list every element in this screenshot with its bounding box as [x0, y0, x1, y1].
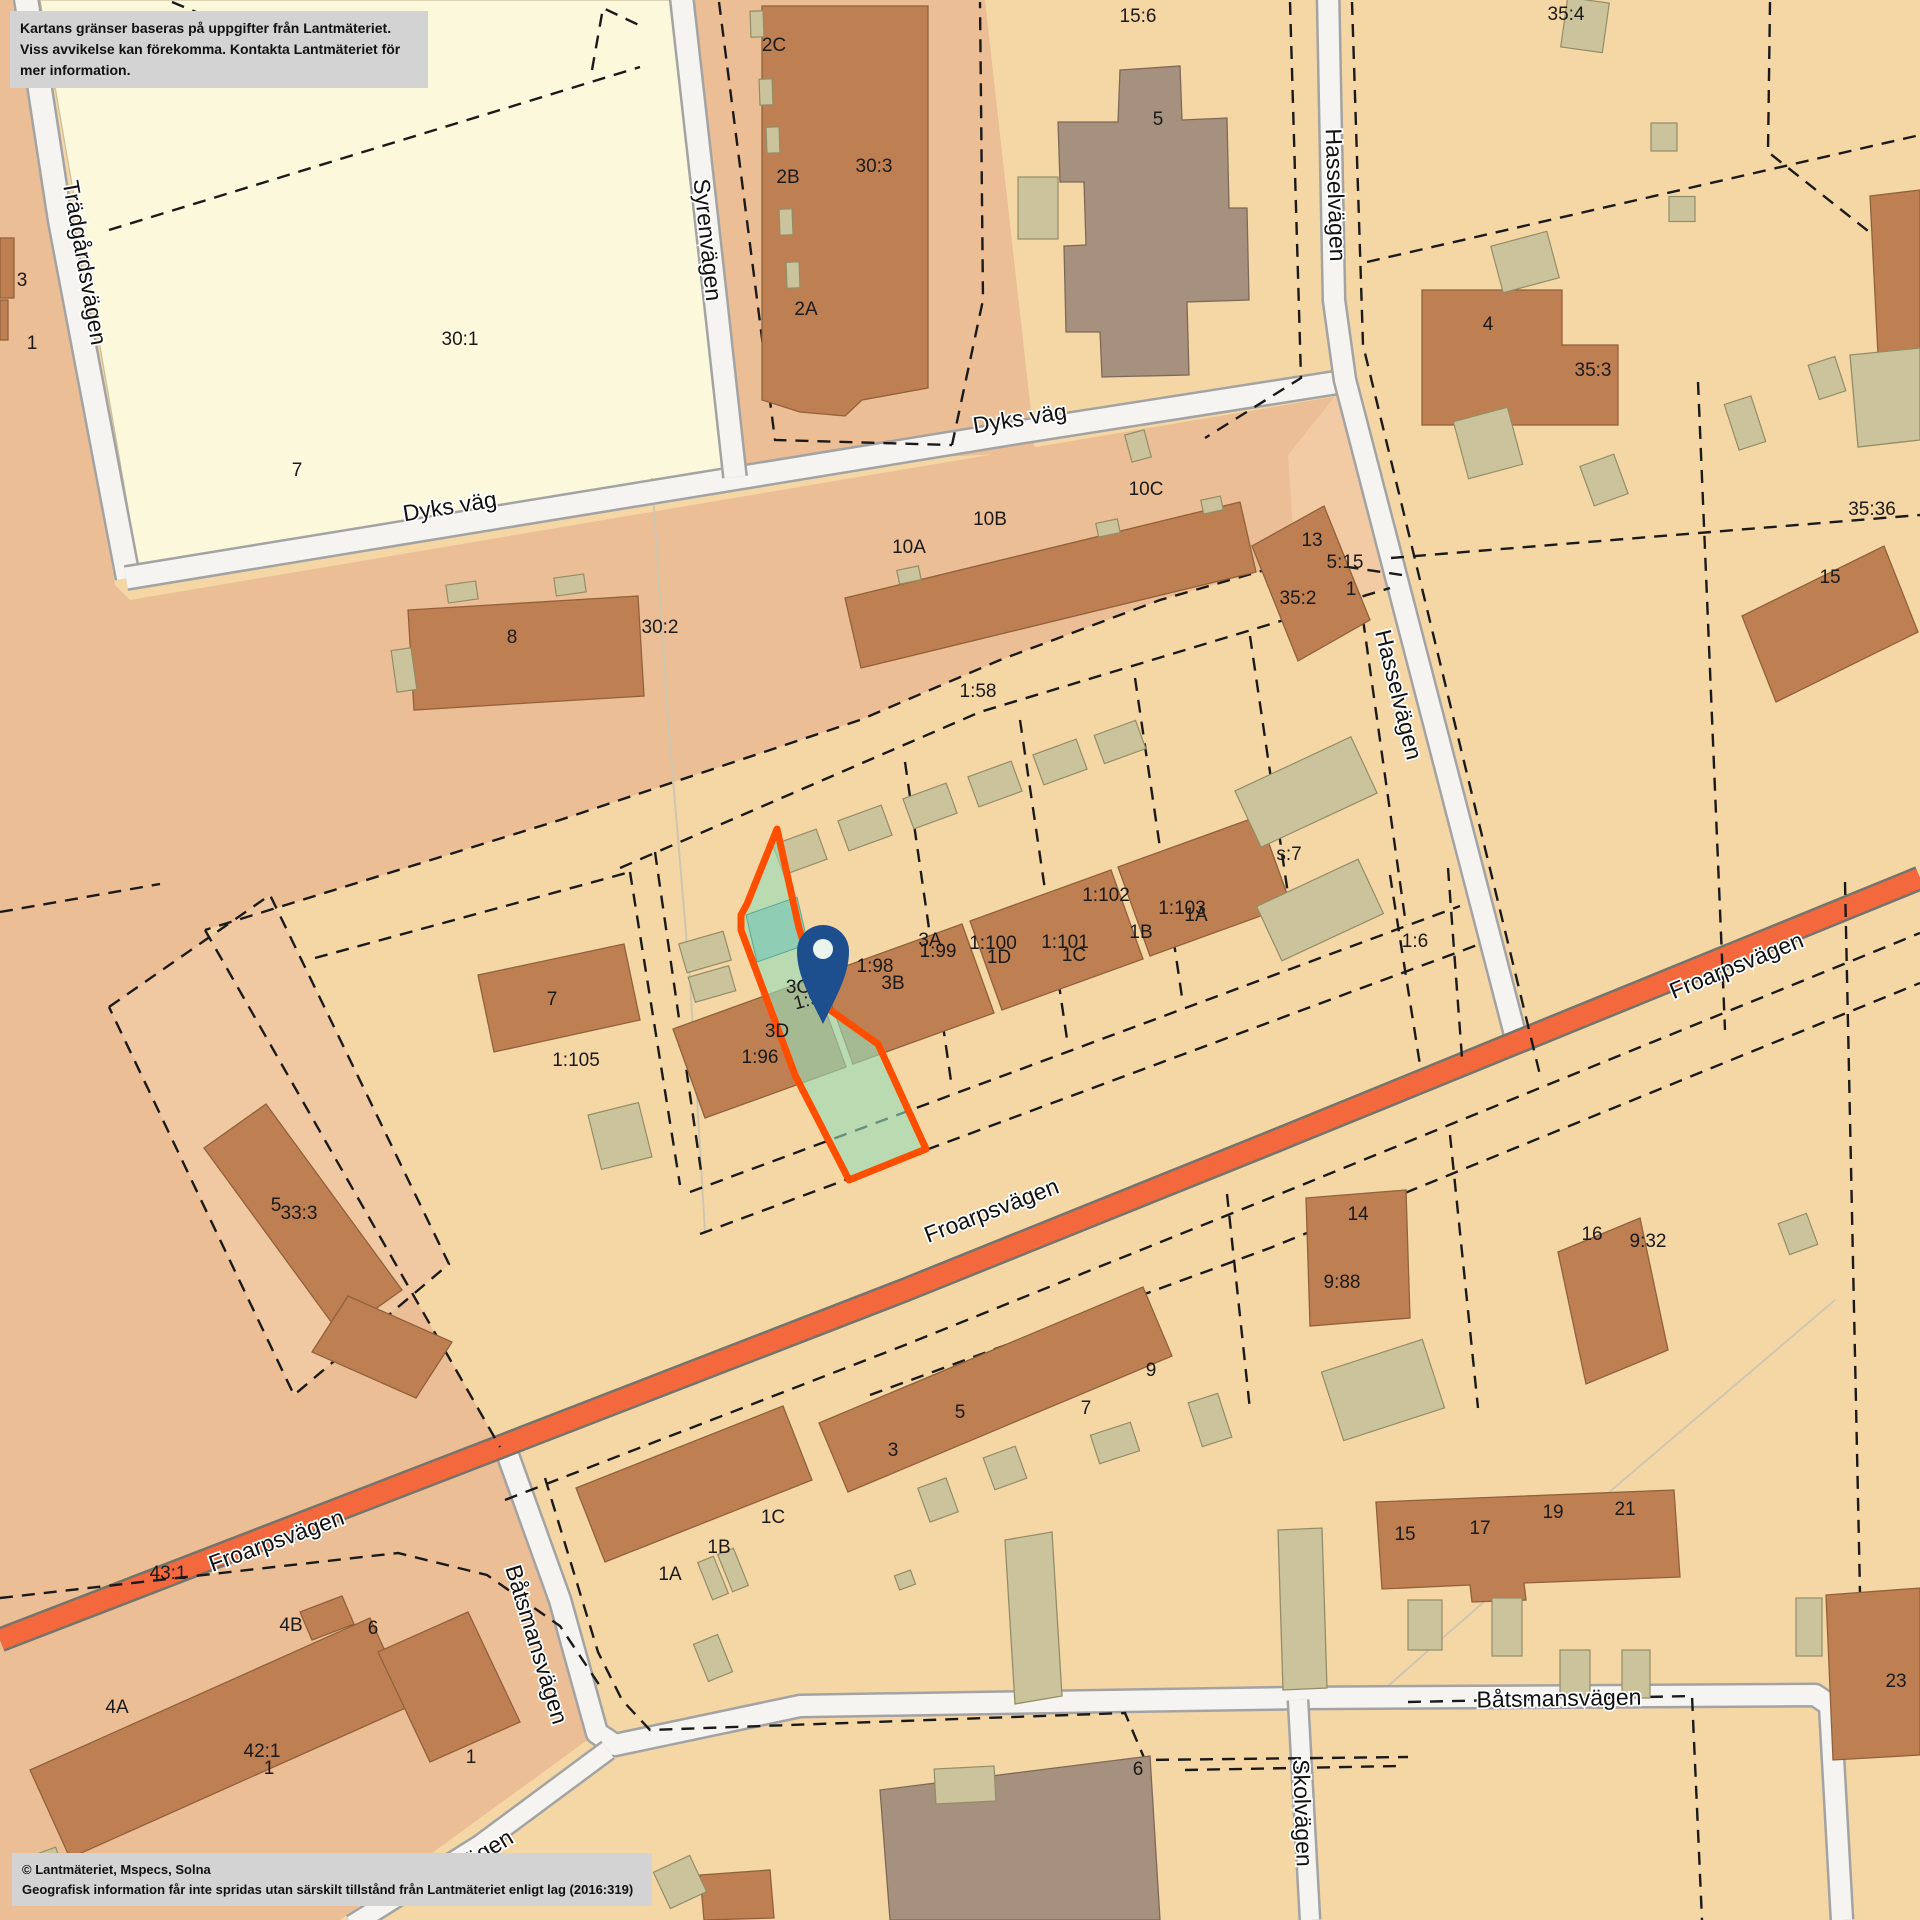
- parcel-label-3b-28: 3B: [881, 973, 904, 994]
- parcel-label-1-6-26: 1:6: [1402, 931, 1428, 952]
- parcel-label-7-43: 7: [547, 989, 558, 1010]
- shed-72: [1408, 1600, 1442, 1650]
- parcel-label-35-36-22: 35:36: [1848, 499, 1896, 520]
- shed-76: [1796, 1598, 1822, 1656]
- parcel-label-1-105-44: 1:105: [552, 1050, 600, 1071]
- parcel-label-15-65: 15: [1394, 1524, 1415, 1545]
- parcel-label-30-3-7: 30:3: [856, 156, 893, 177]
- parcel-label-33-3-46: 33:3: [281, 1203, 318, 1224]
- parcel-label-2b-5: 2B: [776, 167, 799, 188]
- parcel-label-7-3: 7: [292, 460, 303, 481]
- shed-40: [759, 79, 773, 105]
- parcel-label-6-70: 6: [1133, 1759, 1144, 1780]
- building-8: [408, 596, 644, 710]
- parcel-label-10c-12: 10C: [1129, 479, 1164, 500]
- street-label-hasselv-gen-4: Hasselvägen: [1321, 128, 1352, 262]
- map-canvas[interactable]: 3130:172C2B2A30:3830:210A10B10C15:6535:4…: [0, 0, 1920, 1920]
- map-attribution: © Lantmäteriet, Mspecs, Solna Geografisk…: [12, 1853, 652, 1906]
- parcel-label-14-61: 14: [1347, 1204, 1369, 1225]
- parcel-label-30-1-2: 30:1: [442, 329, 479, 350]
- shed-1abc-big: [1005, 1532, 1062, 1704]
- parcel-label-10b-11: 10B: [973, 509, 1007, 530]
- parcel-label-1-19: 1: [1346, 579, 1357, 600]
- parcel-label-4a-48: 4A: [105, 1697, 129, 1718]
- parcel-label-4-16: 4: [1483, 314, 1494, 335]
- shed-45: [554, 574, 586, 596]
- parcel-label-16-63: 16: [1581, 1224, 1602, 1245]
- disclaimer-line-1: Kartans gränser baseras på uppgifter frå…: [20, 18, 418, 39]
- parcel-label-21-68: 21: [1614, 1499, 1635, 1520]
- shed-35-3-big: [1850, 348, 1920, 447]
- parcel-label-35-2-21: 35:2: [1280, 588, 1317, 609]
- map-disclaimer: Kartans gränser baseras på uppgifter frå…: [10, 11, 428, 88]
- parcel-label-15-6-13: 15:6: [1120, 6, 1157, 27]
- building-bottom-small: [700, 1870, 774, 1920]
- parcel-label-1-102-35: 1:102: [1082, 885, 1130, 906]
- shed-52: [1651, 123, 1677, 151]
- parcel-label-5-15-18: 5:15: [1327, 552, 1364, 573]
- shed-39: [750, 11, 764, 37]
- parcel-label-9-88-62: 9:88: [1324, 1272, 1361, 1293]
- parcel-label-35-4-15: 35:4: [1548, 4, 1585, 25]
- shed-42: [779, 209, 793, 235]
- parcel-label-42-1-51: 42:1: [244, 1741, 281, 1762]
- parcel-label-8-8: 8: [507, 627, 518, 648]
- parcel-label-15-23: 15: [1819, 567, 1840, 588]
- building-left-a: [0, 238, 14, 298]
- pin-hole: [813, 939, 833, 959]
- parcel-label-1-58-24: 1:58: [960, 681, 997, 702]
- building-35-4: [1870, 190, 1920, 355]
- street-label-b-tsmansv-gen-10: Båtsmansvägen: [1476, 1684, 1641, 1713]
- parcel-label-35-3-17: 35:3: [1575, 360, 1612, 381]
- shed-77: [934, 1766, 996, 1804]
- disclaimer-line-2: Viss avvikelse kan förekomma. Kontakta L…: [20, 39, 418, 81]
- parcel-label-1c-56: 1C: [761, 1507, 785, 1528]
- parcel-label-43-1-47: 43:1: [150, 1563, 187, 1584]
- parcel-label-1d-32: 1D: [987, 947, 1011, 968]
- attribution-line-1: © Lantmäteriet, Mspecs, Solna: [22, 1860, 642, 1880]
- parcel-label-2a-6: 2A: [794, 299, 818, 320]
- shed-53: [1669, 197, 1695, 222]
- parcel-label-5-58: 5: [955, 1402, 966, 1423]
- parcel-label-1-53: 1: [466, 1747, 477, 1768]
- shed-43: [786, 262, 800, 288]
- parcel-label-1c-34: 1C: [1062, 945, 1086, 966]
- parcel-label-3-0: 3: [17, 270, 28, 291]
- map-stage: 3130:172C2B2A30:3830:210A10B10C15:6535:4…: [0, 0, 1920, 1920]
- parcel-label-3d-41: 3D: [765, 1021, 789, 1042]
- parcel-label-1-1: 1: [27, 333, 38, 354]
- parcel-label-30-2-9: 30:2: [642, 617, 679, 638]
- shed-41: [766, 127, 780, 153]
- parcel-label-5-14: 5: [1153, 109, 1164, 130]
- parcel-label-1a-38: 1A: [1184, 905, 1208, 926]
- shed-50: [1018, 177, 1058, 239]
- building-left-b: [0, 300, 8, 340]
- parcel-label-1-96-42: 1:96: [742, 1047, 779, 1068]
- parcel-label-10a-10: 10A: [892, 537, 926, 558]
- parcel-label-1a-54: 1A: [658, 1564, 682, 1585]
- parcel-label-6-50: 6: [368, 1618, 379, 1639]
- parcel-label-9-60: 9: [1146, 1360, 1157, 1381]
- parcel-label-2c-4: 2C: [762, 35, 786, 56]
- parcel-label-23-69: 23: [1885, 1671, 1906, 1692]
- parcel-label-13-20: 13: [1301, 530, 1322, 551]
- parcel-label-1-99-30: 1:99: [920, 941, 957, 962]
- shed-73: [1492, 1598, 1522, 1656]
- parcel-label-s-7-25: s:7: [1276, 844, 1301, 865]
- parcel-label-1b-55: 1B: [707, 1537, 730, 1558]
- shed-44: [446, 581, 478, 603]
- parcel-label-7-59: 7: [1081, 1398, 1092, 1419]
- parcel-label-1b-36: 1B: [1129, 922, 1152, 943]
- attribution-line-2: Geografisk information får inte spridas …: [22, 1880, 642, 1900]
- parcel-label-3-57: 3: [888, 1440, 899, 1461]
- parcel-label-4b-49: 4B: [279, 1615, 302, 1636]
- street-label-skolv-gen-12: Skolvägen: [1288, 1759, 1318, 1867]
- parcel-label-17-66: 17: [1469, 1518, 1490, 1539]
- parcel-label-1-52: 1: [264, 1758, 275, 1779]
- parcel-label-9-32-64: 9:32: [1630, 1231, 1667, 1252]
- shed-15-21-tall: [1278, 1528, 1327, 1690]
- parcel-label-19-67: 19: [1542, 1502, 1563, 1523]
